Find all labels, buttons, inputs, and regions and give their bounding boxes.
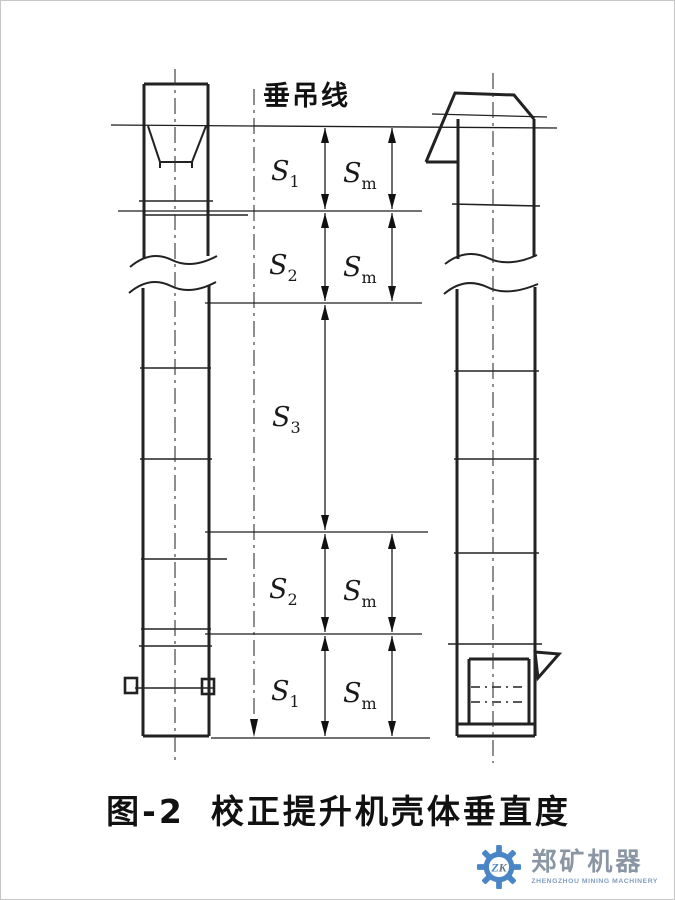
logo-text-column: 郑矿机器 ZHENGZHOU MINING MACHINERY [531, 849, 658, 884]
left-casing-hopper [148, 126, 206, 168]
left-casing-outline-lower [143, 285, 209, 736]
company-logo: ZK 郑矿机器 ZHENGZHOU MINING MACHINERY [476, 844, 658, 890]
figure-caption: 图-2校正提升机壳体垂直度 [1, 785, 675, 833]
left-casing-joint-lines [135, 201, 248, 688]
right-elevator-casing [426, 73, 559, 763]
label-s2-bottom: S2 [269, 574, 298, 609]
left-casing-bracket-left [125, 678, 137, 693]
figure-title: 校正提升机壳体垂直度 [211, 792, 571, 831]
label-sm-row4: Sm [343, 576, 377, 611]
company-name: 郑矿机器 [531, 849, 643, 875]
label-sm-row5: Sm [343, 678, 377, 713]
section-boundary-lines [118, 211, 430, 738]
label-sm-row1: Sm [343, 158, 377, 193]
dimension-labels: S1 Sm S2 Sm S3 S2 Sm S1 [269, 156, 377, 713]
label-s1-bottom: S1 [271, 676, 300, 711]
left-casing-break-wave-top [130, 256, 217, 267]
figure-number: 图-2 [106, 792, 185, 831]
plumb-line-arrowhead [250, 719, 258, 737]
right-casing-boot-dashed-lines [471, 687, 527, 702]
right-casing-boot-flag [535, 652, 559, 678]
elevator-verticality-diagram: 垂吊线 S1 Sm [1, 1, 675, 841]
right-casing-outline-upper [458, 119, 534, 259]
company-subtitle: ZHENGZHOU MINING MACHINERY [531, 878, 658, 885]
right-casing-joint-lines [448, 204, 542, 644]
label-s2-top: S2 [269, 250, 298, 285]
label-s3: S3 [272, 402, 301, 437]
left-elevator-casing [125, 69, 248, 763]
logo-monogram: ZK [491, 860, 508, 874]
plumb-line-group: 垂吊线 [250, 81, 350, 737]
left-casing-outline-upper [144, 84, 208, 259]
label-sm-row2: Sm [343, 252, 377, 287]
plumb-line-label: 垂吊线 [263, 81, 350, 112]
top-reference-line [111, 125, 557, 128]
dimension-arrow-lines [325, 128, 392, 736]
right-casing-boot [457, 659, 535, 724]
figure-page: 垂吊线 S1 Sm [0, 0, 675, 900]
gear-zk-icon: ZK [476, 844, 522, 890]
label-s1-top: S1 [271, 156, 300, 191]
